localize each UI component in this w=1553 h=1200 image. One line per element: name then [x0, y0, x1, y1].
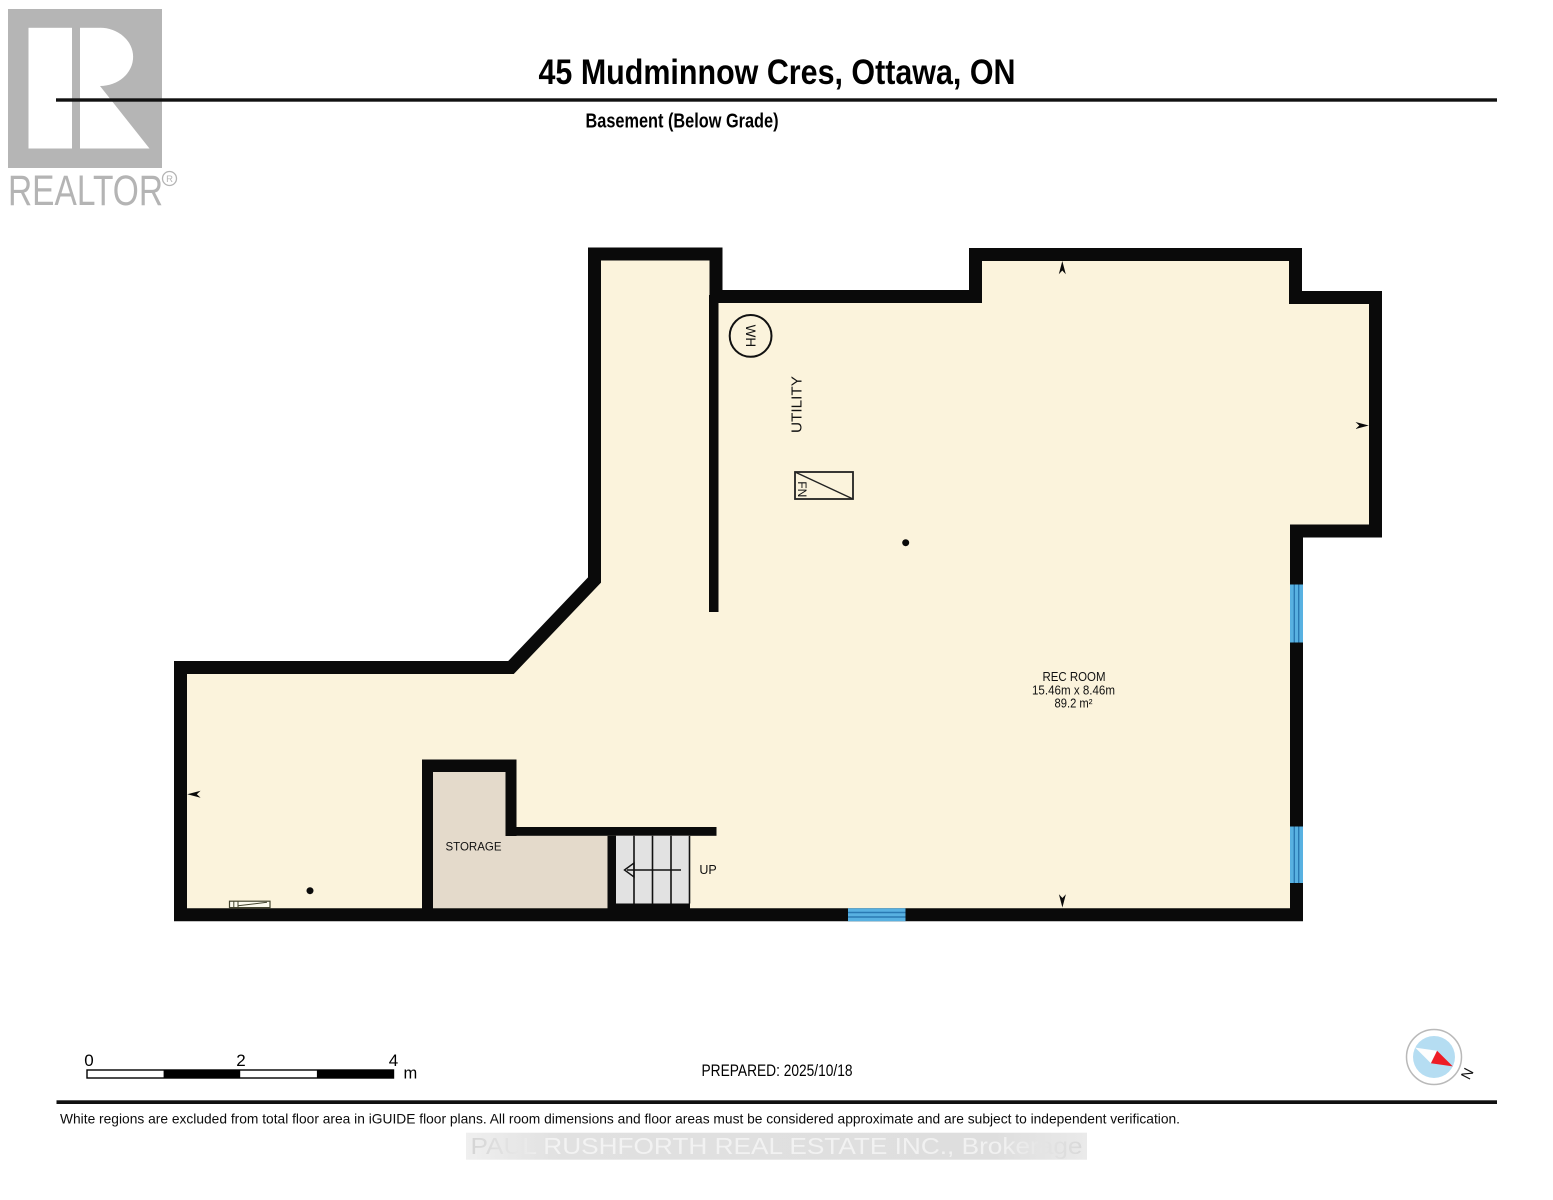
- svg-text:PAUL RUSHFORTH REAL ESTATE INC: PAUL RUSHFORTH REAL ESTATE INC., Brokera…: [471, 1133, 1083, 1159]
- svg-text:Basement (Below Grade): Basement (Below Grade): [586, 110, 779, 133]
- svg-text:45 Mudminnow Cres, Ottawa, ON: 45 Mudminnow Cres, Ottawa, ON: [539, 53, 1016, 92]
- svg-text:4: 4: [389, 1051, 398, 1070]
- svg-text:FN: FN: [795, 481, 809, 497]
- svg-text:STORAGE: STORAGE: [446, 840, 502, 854]
- svg-text:WH: WH: [743, 325, 758, 348]
- svg-text:89.2 m²: 89.2 m²: [1055, 697, 1093, 711]
- svg-text:PREPARED: 2025/10/18: PREPARED: 2025/10/18: [702, 1061, 853, 1080]
- svg-text:R: R: [166, 174, 173, 185]
- svg-text:REALTOR: REALTOR: [8, 167, 163, 215]
- svg-text:White regions are excluded fro: White regions are excluded from total fl…: [60, 1111, 1180, 1127]
- svg-text:UP: UP: [699, 863, 716, 877]
- svg-text:m: m: [404, 1065, 418, 1083]
- svg-text:15.46m x 8.46m: 15.46m x 8.46m: [1032, 684, 1115, 698]
- svg-text:REC ROOM: REC ROOM: [1043, 669, 1106, 684]
- svg-text:2: 2: [236, 1051, 245, 1070]
- svg-text:0: 0: [84, 1051, 93, 1070]
- svg-text:UTILITY: UTILITY: [789, 376, 806, 433]
